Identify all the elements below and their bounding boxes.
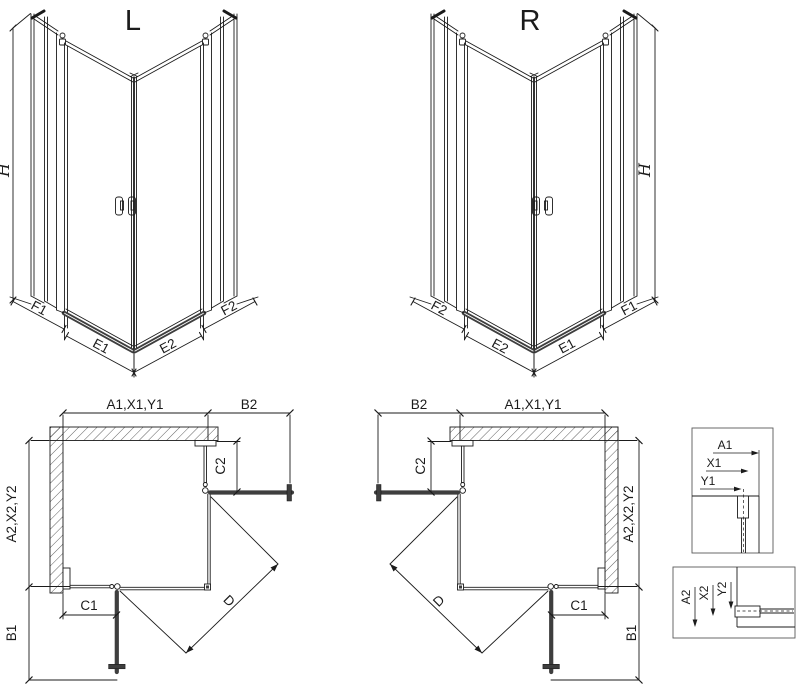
shower-enclosure-technical-drawing: L H F1 E1 E2 F2 R H F2 E2 E1 F1 A1,X1,Y1…: [0, 0, 800, 688]
r-plan-walls: [450, 427, 618, 593]
plan-view-right-variant: A1,X1,Y1 B2 C2 A2,X2,Y2 C1 B1 D: [375, 397, 642, 683]
l-plan-dim-c2: C2: [213, 457, 228, 474]
r-plan-dim-d: D: [430, 592, 448, 610]
detail-dim-x2: X2: [697, 585, 711, 600]
right-variant-title: R: [520, 5, 541, 37]
r-plan-dim-depth: A2,X2,Y2: [621, 485, 636, 542]
left-variant-title: L: [125, 5, 141, 37]
l-view-height-dim-label: H: [0, 162, 13, 178]
x2-arrow: [711, 609, 716, 617]
l-plan-walls: [50, 427, 218, 593]
front-view-left-variant: L H F1 E1 E2 F2: [0, 5, 258, 377]
y1-arrow: [734, 487, 742, 492]
r-view-dim-f1: F1: [618, 298, 639, 319]
l-plan-dim-c1: C1: [80, 598, 97, 613]
l-plan-dim-d: D: [220, 592, 238, 610]
detail-box-top-profile: A1 X1 Y1: [692, 428, 773, 553]
detail-dim-a1: A1: [718, 438, 733, 452]
r-plan-dim-b1: B1: [624, 625, 639, 642]
r-plan-geometry: [375, 410, 642, 683]
front-view-left-geometry: [10, 11, 258, 377]
r-plan-dim-b2: B2: [411, 397, 428, 412]
detail-dim-a2: A2: [679, 589, 693, 604]
r-view-height-dim-label: H: [635, 162, 654, 178]
plan-view-left-variant: A1,X1,Y1 B2 C2 A2,X2,Y2 C1 B1 D: [4, 397, 293, 683]
l-plan-dim-b2: B2: [241, 397, 258, 412]
l-view-dim-f2: F2: [218, 298, 239, 319]
drawing-canvas: L H F1 E1 E2 F2 R H F2 E2 E1 F1 A1,X1,Y1…: [0, 0, 800, 688]
r-view-dim-f2: F2: [429, 298, 450, 319]
y2-arrow: [729, 602, 734, 610]
x1-arrow: [741, 469, 749, 474]
l-plan-geometry: [26, 410, 293, 683]
detail-dim-y2: Y2: [715, 581, 729, 596]
r-plan-dim-width: A1,X1,Y1: [504, 397, 561, 412]
l-plan-dim-depth: A2,X2,Y2: [4, 485, 19, 542]
r-plan-dim-c2: C2: [413, 457, 428, 474]
l-plan-dim-b1: B1: [4, 625, 19, 642]
a2-arrow: [693, 620, 698, 628]
front-view-right-geometry: [410, 11, 658, 377]
front-view-right-variant: R H F2 E2 E1 F1: [410, 5, 658, 377]
a1-arrow: [752, 451, 760, 456]
detail-dim-x1: X1: [707, 456, 722, 470]
detail-dim-y1: Y1: [701, 474, 716, 488]
l-view-dim-f1: F1: [29, 298, 50, 319]
l-plan-dim-width: A1,X1,Y1: [106, 397, 163, 412]
detail-box-bottom-profile: A2 X2 Y2: [673, 567, 795, 638]
r-plan-dim-c1: C1: [570, 598, 587, 613]
